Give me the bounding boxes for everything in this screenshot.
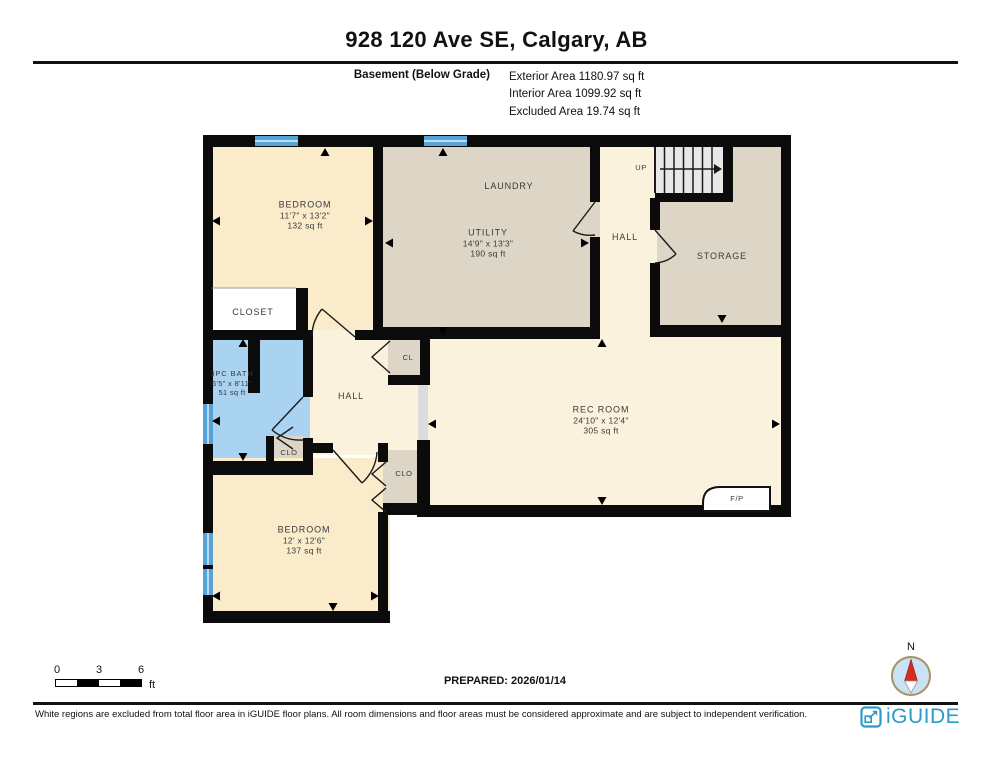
room-label-utility: UTILITY 14'9" x 13'3" 190 sq ft xyxy=(463,227,514,259)
room-label-hall-mid: HALL xyxy=(338,391,364,402)
room-label-laundry: LAUNDRY xyxy=(484,181,533,192)
compass-rose-icon xyxy=(888,654,934,698)
iguide-logo-icon xyxy=(860,706,882,728)
room-label-cl: CL xyxy=(403,353,414,364)
iguide-logo-text: iGUIDE xyxy=(886,705,960,729)
room-label-bedroom2: BEDROOM 12' x 12'6" 137 sq ft xyxy=(278,524,331,556)
interior-area: Interior Area 1099.92 sq ft xyxy=(509,86,644,103)
scale-tick-3: 3 xyxy=(96,664,102,676)
north-label: N xyxy=(888,641,934,653)
iguide-logo: iGUIDE xyxy=(860,705,960,729)
scale-tick-0: 0 xyxy=(54,664,60,676)
room-label-rec-room: REC ROOM 24'10" x 12'4" 305 sq ft xyxy=(573,404,630,436)
footer-divider xyxy=(33,702,958,705)
page-title: 928 120 Ave SE, Calgary, AB xyxy=(0,27,993,53)
prepared-date: PREPARED: 2026/01/14 xyxy=(400,675,610,687)
scale-bar xyxy=(55,679,142,687)
scale-unit-label: ft xyxy=(149,679,155,691)
exterior-area: Exterior Area 1180.97 sq ft xyxy=(509,69,644,86)
room-label-closet: CLOSET xyxy=(232,307,273,318)
room-label-clo-bath: CLO xyxy=(280,448,297,459)
excluded-area: Excluded Area 19.74 sq ft xyxy=(509,104,644,121)
floorplan-page: 928 120 Ave SE, Calgary, AB Basement (Be… xyxy=(0,0,993,768)
room-label-bath: 3PC BATH 6'5" x 8'11" 51 sq ft xyxy=(210,369,253,398)
title-divider xyxy=(33,61,958,64)
room-label-bedroom1: BEDROOM 11'7" x 13'2" 132 sq ft xyxy=(279,199,332,231)
scale-segment xyxy=(56,680,77,686)
scale-segment xyxy=(120,680,141,686)
north-compass-icon: N xyxy=(888,641,934,703)
area-summary: Exterior Area 1180.97 sq ft Interior Are… xyxy=(509,69,644,121)
scale-tick-6: 6 xyxy=(138,664,144,676)
footer-disclaimer: White regions are excluded from total fl… xyxy=(35,709,807,720)
room-label-clo-bottom: CLO xyxy=(395,469,412,480)
wall-opening xyxy=(418,385,428,440)
stairs-up-label: UP xyxy=(635,163,647,174)
floor-name: Basement (Below Grade) xyxy=(240,69,490,81)
fireplace-label: F/P xyxy=(730,494,743,505)
room-label-hall-top: HALL xyxy=(612,232,638,243)
room-label-storage: STORAGE xyxy=(697,251,747,262)
scale-segment xyxy=(99,680,120,686)
scale-segment xyxy=(77,680,98,686)
